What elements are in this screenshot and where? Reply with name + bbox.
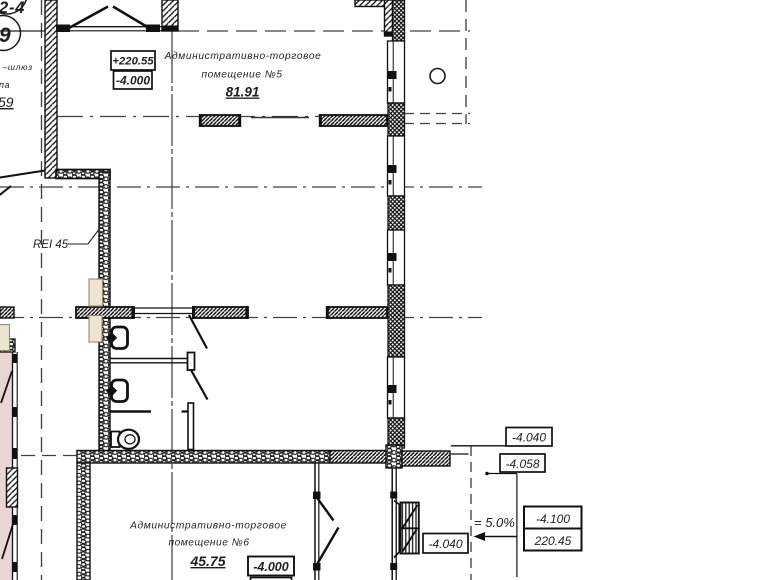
svg-text:220.45: 220.45 [534, 534, 572, 548]
svg-text:па: па [0, 80, 10, 90]
svg-text:45.75: 45.75 [189, 553, 225, 569]
svg-text:Административно-торговое: Административно-торговое [129, 521, 287, 532]
svg-text:-4.000: -4.000 [253, 560, 288, 574]
svg-text:–шлюз: –шлюз [2, 62, 33, 72]
svg-text:+220.55: +220.55 [112, 56, 154, 68]
svg-text:-4.100: -4.100 [536, 512, 570, 526]
svg-text:-4.040: -4.040 [512, 431, 546, 445]
svg-text:REI 45: REI 45 [33, 239, 69, 251]
svg-text:помещение №6: помещение №6 [168, 538, 249, 549]
svg-text:81.91: 81.91 [226, 85, 260, 100]
svg-text:Административно-торговое: Административно-торговое [164, 51, 322, 62]
svg-text:-4.058: -4.058 [505, 457, 539, 471]
svg-text:= 5.0%: = 5.0% [474, 515, 515, 530]
svg-text:59: 59 [0, 94, 14, 110]
svg-text:9: 9 [0, 24, 11, 47]
svg-text:-4.040: -4.040 [428, 537, 462, 551]
svg-text:2-4: 2-4 [0, 0, 25, 17]
svg-text:помещение №5: помещение №5 [201, 70, 282, 81]
svg-text:-4.000: -4.000 [116, 74, 150, 88]
